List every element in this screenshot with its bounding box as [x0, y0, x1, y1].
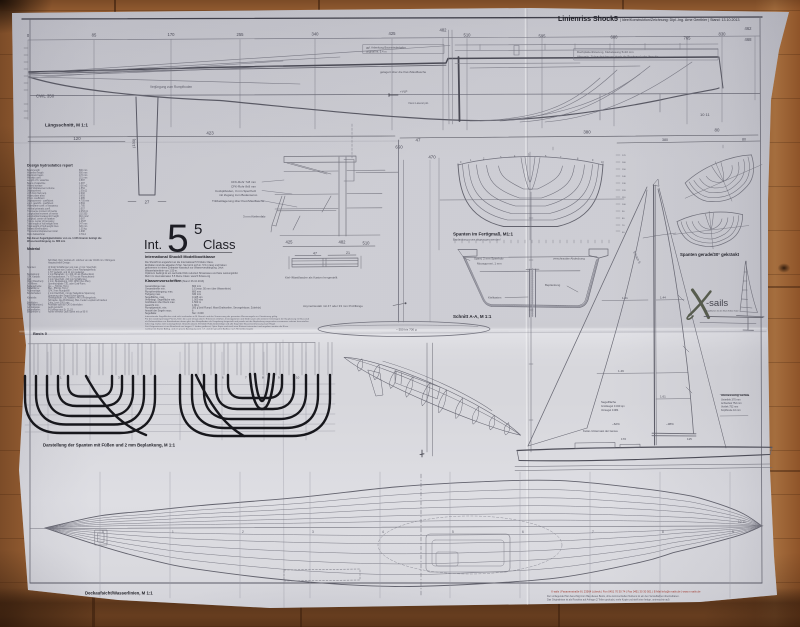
svg-text:80: 80 [715, 128, 720, 133]
svg-text:Klassenvorschriften: Klassenvorschriften [145, 279, 182, 283]
svg-text:470: 470 [428, 155, 436, 160]
svg-text:Spant, 2 mm Sperrholz: Spant, 2 mm Sperrholz [474, 257, 504, 261]
svg-text:| Idee/Konstruktion/Zeichnung:: | Idee/Konstruktion/Zeichnung: Dipl.-Ing… [620, 18, 740, 22]
svg-text:10: 10 [601, 161, 604, 164]
svg-text:5: 5 [528, 154, 530, 157]
svg-text:115: 115 [687, 437, 692, 441]
svg-text:120: 120 [622, 190, 626, 192]
svg-text:110: 110 [622, 197, 626, 199]
svg-text:4: 4 [382, 530, 384, 534]
svg-text:150: 150 [622, 169, 626, 171]
svg-text:1.44: 1.44 [660, 296, 666, 300]
svg-text:Spanten gerade/30° gekränkt: Spanten gerade/30° gekränkt [680, 252, 740, 257]
svg-text:Spanten:: Spanten: [27, 266, 37, 269]
svg-text:Großsegel 0.340 qm: Großsegel 0.340 qm [601, 404, 625, 408]
svg-text:27: 27 [145, 200, 150, 205]
svg-text:510: 510 [363, 241, 371, 246]
svg-text:Darstellung der Spanten mit Fü: Darstellung der Spanten mit Füßen und 2 … [43, 443, 176, 448]
svg-text:10 11: 10 11 [738, 520, 746, 524]
svg-text:2: 2 [88, 376, 90, 380]
svg-text:-sails: -sails [706, 298, 728, 309]
svg-text:468: 468 [745, 37, 753, 42]
svg-text:47: 47 [313, 251, 317, 255]
svg-text:0: 0 [102, 530, 104, 534]
svg-text:Asymetriestab mit 47 oder 33 m: Asymetriestab mit 47 oder 33 mm Profillä… [303, 304, 363, 308]
svg-text:Dachplattenfixierung, Klebelas: Dachplattenfixierung, Klebelasung 5x10 m… [577, 50, 634, 54]
svg-text:170: 170 [622, 155, 626, 157]
svg-text:255: 255 [237, 32, 245, 37]
svg-text:60: 60 [622, 232, 625, 234]
svg-text:+VLP: +VLP [400, 90, 407, 94]
svg-text:130: 130 [622, 183, 626, 185]
svg-text:85: 85 [92, 33, 97, 38]
svg-text:Class: Class [203, 237, 236, 252]
svg-text:340: 340 [312, 31, 320, 36]
svg-text:765: 765 [684, 36, 692, 41]
svg-text:Vorsegel 0.084: Vorsegel 0.084 [601, 408, 619, 412]
svg-text:~38%: ~38% [666, 422, 674, 426]
svg-text:90: 90 [622, 211, 625, 213]
svg-text:Verjüngung zum Rumpfboden: Verjüngung zum Rumpfboden [150, 85, 192, 89]
svg-text:Alternativ: Schraubsicherung d: Alternativ: Schraubsicherung durch die B… [577, 55, 659, 59]
svg-text:6: 6 [222, 376, 224, 380]
svg-text:100: 100 [622, 204, 626, 206]
svg-text:9: 9 [278, 376, 280, 380]
svg-text:Water plane area: Water plane area [27, 195, 45, 198]
svg-text:650: 650 [395, 145, 403, 150]
svg-text:1: 1 [172, 530, 174, 534]
svg-text:0: 0 [460, 161, 462, 164]
svg-text:Beplankung: Beplankung [545, 283, 561, 287]
svg-text:Basis 0: Basis 0 [33, 331, 48, 336]
svg-text:mit Zugang zum Bodenservo: mit Zugang zum Bodenservo [219, 193, 258, 197]
svg-text:Design hydrostatics report: Design hydrostatics report [27, 164, 74, 168]
svg-text:300 g (inkl Rumpf, Mast-Drahts: 300 g (inkl Rumpf, Mast-Drahtseilen, Ser… [192, 307, 261, 310]
svg-text:482: 482 [339, 240, 347, 245]
svg-text:510: 510 [464, 33, 472, 38]
svg-text:0: 0 [27, 33, 30, 38]
svg-text:Wetted surface: Wetted surface [27, 184, 43, 187]
svg-text:1: 1 [60, 376, 62, 380]
svg-text:Achse versetzt Lack Sprint mit: Achse versetzt Lack Sprint mit ca 90 N [48, 311, 88, 314]
svg-text:(130): (130) [131, 138, 136, 148]
svg-text:original int. 5.4 m: original int. 5.4 m [366, 49, 387, 53]
svg-text:3: 3 [118, 376, 120, 380]
svg-text:10: 10 [296, 376, 300, 380]
svg-text:5: 5 [452, 530, 454, 534]
svg-text:2: 2 [242, 530, 244, 534]
svg-text:Wasserverdrängung ca. 880 mm: Wasserverdrängung ca. 880 mm [27, 240, 66, 243]
svg-text:Trittbettlagerung über Kiel-/M: Trittbettlagerung über Kiel-/Mastflasche [212, 199, 265, 203]
svg-text:140: 140 [622, 176, 626, 178]
svg-text:380: 380 [662, 138, 668, 142]
svg-text:7: 7 [245, 376, 247, 380]
svg-text:Abmessung Genua: Abmessung Genua [721, 393, 749, 397]
svg-text:830: 830 [719, 32, 727, 37]
svg-text:47: 47 [416, 138, 421, 143]
svg-text:Ratio ballast/total: Ratio ballast/total [27, 233, 45, 236]
svg-text:Boats length: Boats length [27, 169, 40, 172]
svg-text:160: 160 [622, 162, 626, 164]
svg-text:Segelflächen für den Shark Edi: Segelflächen für den Shark Edition Sailo… [706, 310, 739, 313]
svg-text:10 11: 10 11 [700, 112, 710, 117]
svg-text:80: 80 [742, 138, 746, 142]
svg-text:Vtest Lateral pkt.: Vtest Lateral pkt. [408, 101, 429, 105]
svg-text:Deckaufsicht/Wasserlinien, M 1: Deckaufsicht/Wasserlinien, M 1:1 [85, 591, 153, 596]
svg-text:680: 680 [611, 35, 619, 40]
svg-text:0.7114: 0.7114 [79, 234, 87, 236]
svg-text:Segelfläche: Segelfläche [601, 400, 616, 404]
svg-text:595: 595 [539, 34, 547, 39]
svg-text:380: 380 [583, 130, 591, 135]
svg-text:~ 550 bis 700 g: ~ 550 bis 700 g [396, 328, 417, 332]
svg-text:7: 7 [592, 530, 594, 534]
svg-text:Total weight of hull weight li: Total weight of hull weight lines [27, 225, 59, 228]
svg-text:Displacement - coefficient: Displacement - coefficient [27, 200, 54, 203]
svg-text:~62%: ~62% [612, 422, 620, 426]
svg-text:Kutter-/Untermast der Genua: Kutter-/Untermast der Genua [583, 429, 618, 433]
svg-text:9: 9 [592, 159, 594, 162]
svg-text:425: 425 [286, 240, 294, 245]
svg-text:1.61: 1.61 [660, 395, 666, 399]
svg-text:Combat mit Starter Anflug. und: Combat mit Starter Anflug. und ein pract… [145, 328, 254, 331]
svg-text:verschraubte Abdeckung: verschraubte Abdeckung [553, 257, 585, 261]
svg-text:Material: Material [27, 247, 40, 251]
svg-text:Bordschatten:: Bordschatten: [27, 292, 42, 295]
svg-text:482: 482 [440, 28, 448, 33]
svg-text:Waterplane coeff. of buoyancy: Waterplane coeff. of buoyancy [27, 205, 59, 208]
svg-text:(Stand: 06.10.2013): (Stand: 06.10.2013) [182, 280, 204, 283]
svg-text:1.49: 1.49 [618, 369, 624, 373]
svg-text:Linienriss Shock5: Linienriss Shock5 [558, 16, 618, 23]
svg-text:CWL 350: CWL 350 [36, 94, 55, 99]
svg-text:423: 423 [206, 131, 214, 136]
svg-text:3 mm Kiefernfalz: 3 mm Kiefernfalz [243, 215, 266, 219]
svg-text:Spanten im Fertigmaß, M1:1: Spanten im Fertigmaß, M1:1 [453, 232, 514, 237]
svg-text:Das Originalrisse ist als Rund: Das Originalrisse ist als Rundriss auf A… [547, 599, 670, 602]
svg-text:21: 21 [346, 251, 350, 255]
svg-text:3: 3 [312, 530, 314, 534]
svg-text:Length of b. waterline: Length of b. waterline [27, 179, 50, 182]
svg-text:462: 462 [745, 26, 753, 31]
svg-text:170: 170 [168, 32, 176, 37]
svg-text:170: 170 [621, 437, 626, 441]
svg-text:Longitudinal metacentric heigh: Longitudinal metacentric height [27, 215, 59, 218]
svg-text:Segellatte:: Segellatte: [145, 312, 157, 315]
svg-text:Kleinteile:: Kleinteile: [27, 297, 37, 300]
svg-text:Kopfbreite 10 mm: Kopfbreite 10 mm [721, 409, 741, 412]
svg-text:Beplankung muss abgezogen werd: Beplankung muss abgezogen werden! [453, 238, 501, 242]
svg-text:CFK-Rohr 8x9 mm: CFK-Rohr 8x9 mm [231, 185, 257, 189]
svg-text:Längsschnitt, M 1:1: Längsschnitt, M 1:1 [45, 123, 88, 128]
svg-text:Theoretical displacement total: Theoretical displacement total [27, 230, 58, 233]
svg-text:5: 5 [194, 221, 202, 238]
svg-text:CFK-Rohr 7x8 mm: CFK-Rohr 7x8 mm [231, 180, 257, 184]
svg-text:120: 120 [73, 136, 81, 141]
svg-text:1.41: 1.41 [622, 296, 628, 300]
svg-text:Nur: 3.000: Nur: 3.000 [192, 312, 204, 315]
svg-text:Kiel-/Mastflasche als Kasten h: Kiel-/Mastflasche als Kasten hergestellt [285, 276, 338, 280]
svg-text:70: 70 [622, 225, 625, 227]
svg-text:Displacement: Displacement [27, 189, 41, 192]
svg-text:Hauptscheibe Design:: Hauptscheibe Design: [48, 261, 71, 264]
svg-text:ggf. Anlenkung Baumniederhalte: ggf. Anlenkung Baumniederhalter [366, 46, 406, 50]
svg-text:6: 6 [522, 530, 524, 534]
svg-text:Schnitt A-A, M 1:1: Schnitt A-A, M 1:1 [453, 314, 492, 319]
svg-text:8: 8 [262, 376, 264, 380]
svg-text:Biegefeder u:: Biegefeder u: [27, 311, 41, 314]
svg-text:Moosgummi, 1 mm: Moosgummi, 1 mm [477, 262, 502, 266]
svg-text:Transv. center of buoyancy: Transv. center of buoyancy [27, 220, 55, 223]
svg-text:Int.: Int. [144, 237, 162, 252]
svg-text:Mehr im internationalen 5.5 Me: Mehr im internationalen 5.5 Metre Class:… [145, 275, 211, 278]
svg-text:X-sails | Fasanenstraße 8 | 23: X-sails | Fasanenstraße 8 | 23564 Lübeck… [551, 590, 701, 594]
svg-text:8: 8 [662, 530, 664, 534]
svg-text:International Shock5 Modellboo: International Shock5 Modellbootklasse [145, 255, 215, 259]
svg-text:9: 9 [732, 530, 734, 534]
svg-text:gelagert über die Kiel-/Mastfl: gelagert über die Kiel-/Mastflasche [380, 70, 427, 74]
svg-text:Transverse moment of inertia: Transverse moment of inertia [27, 210, 58, 213]
svg-text:425: 425 [389, 31, 397, 36]
svg-text:Kielkasten: Kielkasten [488, 296, 502, 300]
svg-text:80: 80 [622, 218, 625, 220]
svg-text:7: 7 [560, 156, 562, 159]
